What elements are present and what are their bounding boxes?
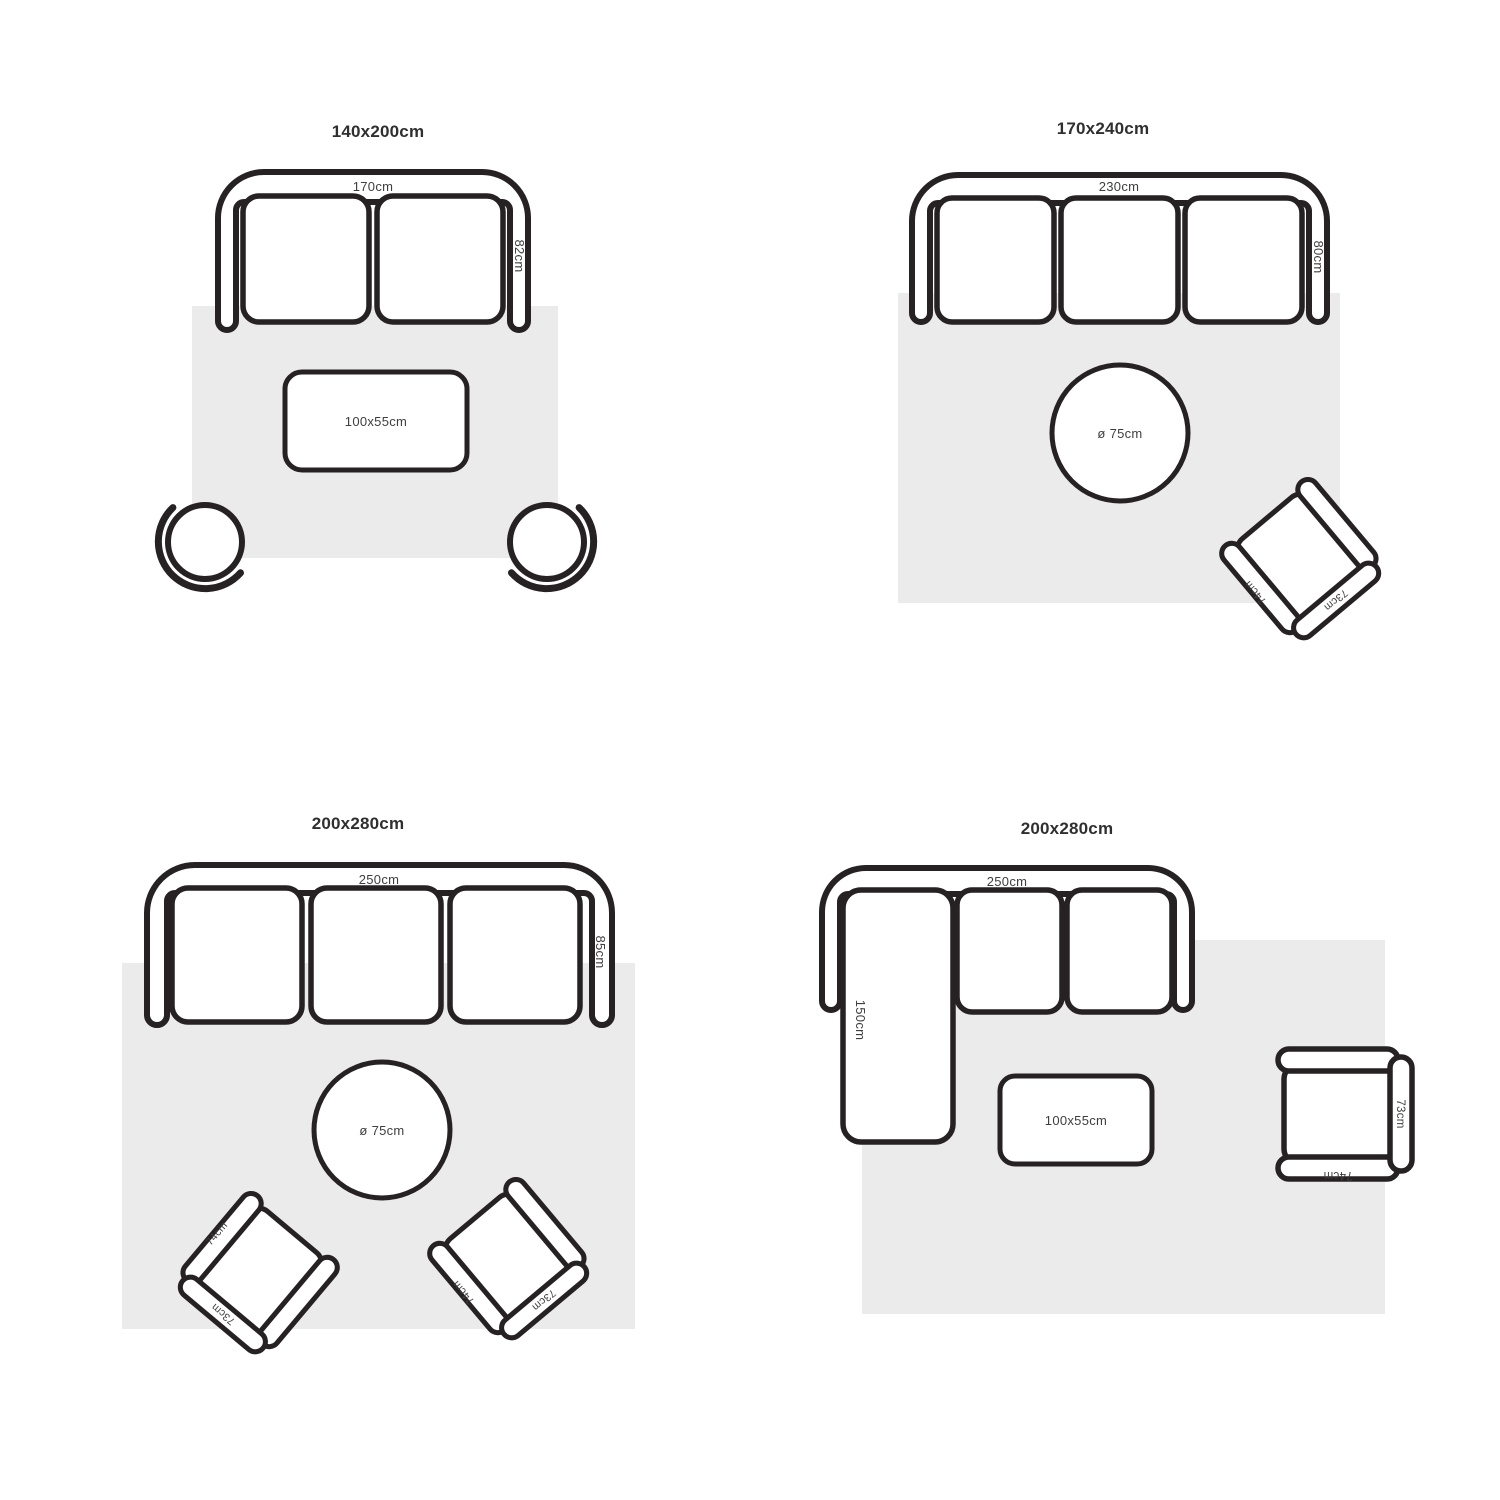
tub-chair-seat (510, 505, 584, 579)
coffee-table-label: 100x55cm (345, 414, 407, 429)
sofa-cushion (1185, 198, 1302, 322)
tub-chair-seat (168, 505, 242, 579)
layout-title: 170x240cm (1057, 119, 1150, 138)
armchair-seat (1284, 1065, 1396, 1163)
layout-title: 140x200cm (332, 122, 425, 141)
sofa-depth-label: 85cm (593, 936, 608, 969)
sofa-width-label: 170cm (353, 179, 394, 194)
sofa-depth-label: 82cm (512, 240, 527, 273)
sofa-cushion (172, 888, 302, 1022)
armchair: 74cm 73cm (1278, 1049, 1412, 1181)
round-table-label: ø 75cm (359, 1123, 404, 1138)
armchair-back-label: 73cm (1394, 1099, 1406, 1128)
sofa-cushion (1061, 198, 1178, 322)
chaise-length-label: 150cm (853, 1000, 868, 1041)
coffee-table-label: 100x55cm (1045, 1113, 1107, 1128)
armchair-arm-label: 74cm (1323, 1169, 1352, 1181)
round-table-label: ø 75cm (1097, 426, 1142, 441)
layout-170x240: 170x240cm 230cm 80cm ø 75cm 74cm 73cm (898, 119, 1388, 648)
layout-title: 200x280cm (1021, 819, 1114, 838)
layout-200x280-a: 200x280cm 250cm 85cm ø 75cm 74cm 73cm 74… (122, 814, 635, 1361)
armchair-arm-right (1278, 1049, 1398, 1071)
rug-size-guide: 140x200cm 170cm 82cm 100x55cm 170x240cm … (0, 0, 1500, 1500)
sofa-width-label: 230cm (1099, 179, 1140, 194)
sofa-cushion (450, 888, 580, 1022)
sofa-width-label: 250cm (359, 872, 400, 887)
sofa-width-label: 250cm (987, 874, 1028, 889)
rug-size-guide-svg: 140x200cm 170cm 82cm 100x55cm 170x240cm … (0, 0, 1500, 1500)
sofa-cushion (311, 888, 441, 1022)
sofa-cushion (377, 196, 503, 322)
sofa-cushion (937, 198, 1054, 322)
sofa-cushion (1067, 890, 1172, 1012)
sofa-cushion (243, 196, 369, 322)
sofa-cushion (957, 890, 1062, 1012)
sofa-depth-label: 80cm (1311, 241, 1326, 274)
layout-title: 200x280cm (312, 814, 405, 833)
